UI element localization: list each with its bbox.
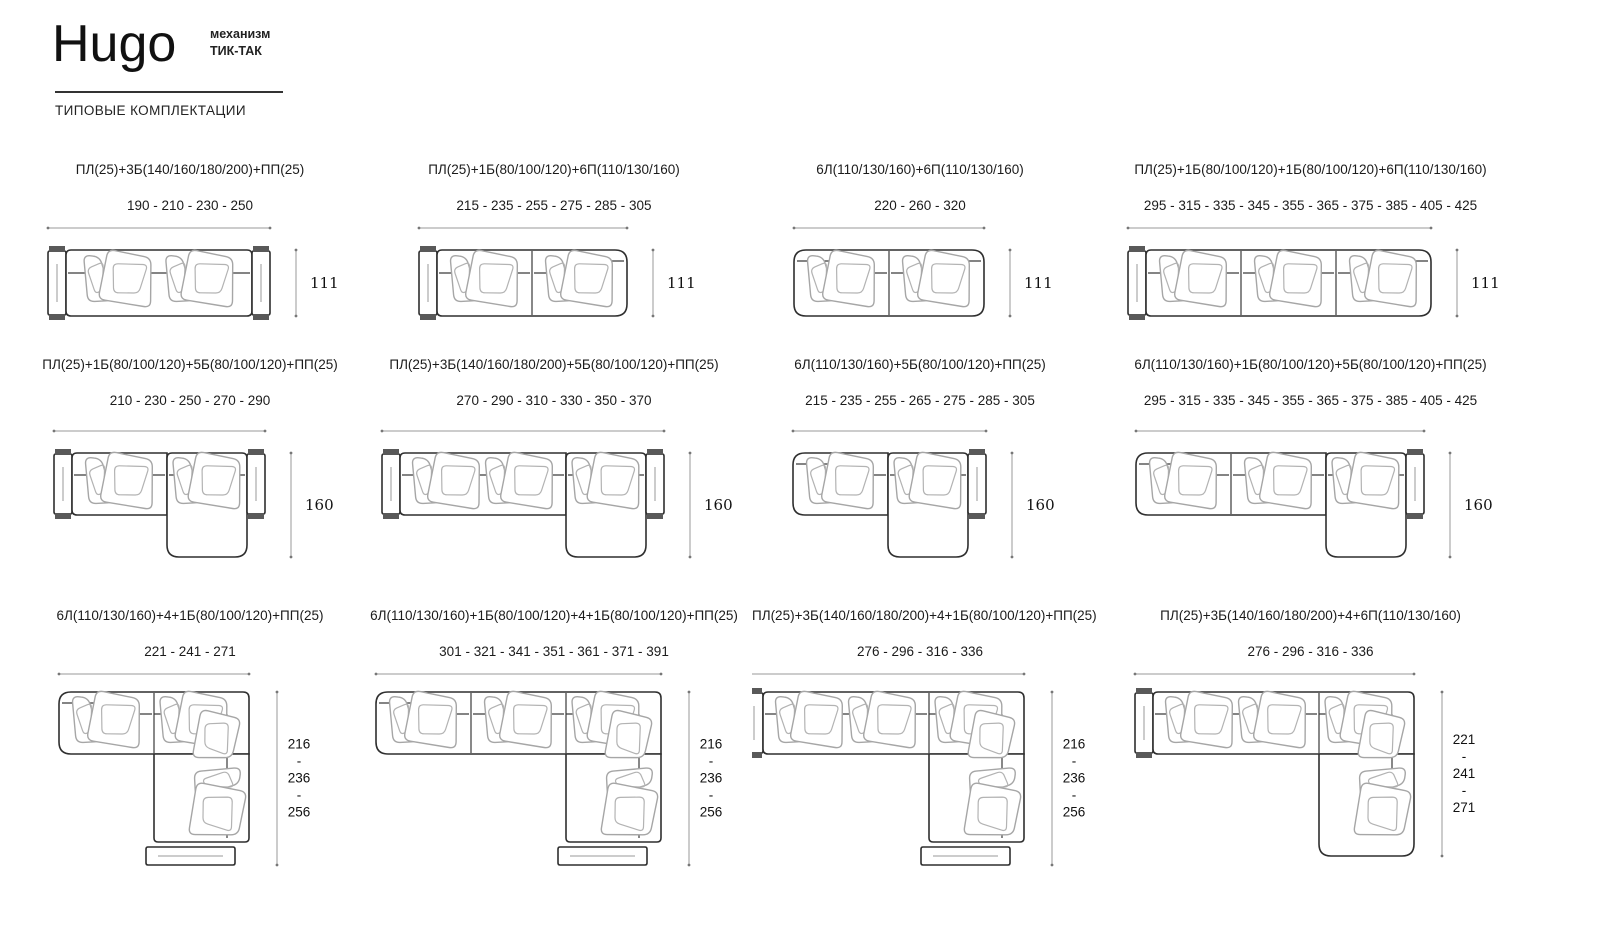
config-cell: ПЛ(25)+3Б(140/160/180/200)+5Б(80/100/120… xyxy=(358,355,750,595)
width-values: 295 - 315 - 335 - 345 - 355 - 365 - 375 … xyxy=(1088,198,1533,213)
width-values: 221 - 241 - 271 xyxy=(20,644,360,659)
config-label: 6Л(110/130/160)+5Б(80/100/120)+ПП(25) xyxy=(752,357,1088,372)
config-cell: 6Л(110/130/160)+6П(110/130/160) 220 - 26… xyxy=(752,160,1088,350)
svg-text:216-236-256: 216-236-256 xyxy=(1063,737,1086,820)
config-label: 6Л(110/130/160)+1Б(80/100/120)+5Б(80/100… xyxy=(1088,357,1533,372)
width-values: 190 - 210 - 230 - 250 xyxy=(20,198,360,213)
sofa-diagram: 160 xyxy=(358,419,750,599)
sofa-diagram: 160 xyxy=(20,419,360,599)
svg-text:111: 111 xyxy=(310,274,339,292)
config-label: 6Л(110/130/160)+6П(110/130/160) xyxy=(752,162,1088,177)
width-values: 276 - 296 - 316 - 336 xyxy=(752,644,1088,659)
width-values: 295 - 315 - 335 - 345 - 355 - 365 - 375 … xyxy=(1088,393,1533,408)
sofa-diagram: 216-236-256 xyxy=(20,662,360,937)
config-label: ПЛ(25)+3Б(140/160/180/200)+4+6П(110/130/… xyxy=(1088,608,1533,623)
width-values: 276 - 296 - 316 - 336 xyxy=(1088,644,1533,659)
config-label: ПЛ(25)+3Б(140/160/180/200)+4+1Б(80/100/1… xyxy=(752,608,1088,623)
config-cell: ПЛ(25)+1Б(80/100/120)+6П(110/130/160) 21… xyxy=(358,160,750,350)
svg-text:221-241-271: 221-241-271 xyxy=(1453,732,1476,815)
config-cell: 6Л(110/130/160)+5Б(80/100/120)+ПП(25) 21… xyxy=(752,355,1088,595)
config-label: ПЛ(25)+1Б(80/100/120)+5Б(80/100/120)+ПП(… xyxy=(20,357,360,372)
config-label: ПЛ(25)+1Б(80/100/120)+6П(110/130/160) xyxy=(358,162,750,177)
svg-text:160: 160 xyxy=(305,496,334,514)
width-values: 220 - 260 - 320 xyxy=(752,198,1088,213)
mechanism-label: механизм ТИК-ТАК xyxy=(210,26,270,60)
sofa-diagram: 160 xyxy=(1088,419,1533,599)
sofa-diagram: 111 xyxy=(358,216,750,366)
config-cell: ПЛ(25)+3Б(140/160/180/200)+4+6П(110/130/… xyxy=(1088,600,1533,940)
sofa-diagram: 221-241-271 xyxy=(1088,662,1533,937)
config-cell: 6Л(110/130/160)+1Б(80/100/120)+5Б(80/100… xyxy=(1088,355,1533,595)
svg-text:111: 111 xyxy=(1471,274,1500,292)
svg-text:111: 111 xyxy=(1024,274,1053,292)
config-label: ПЛ(25)+3Б(140/160/180/200)+5Б(80/100/120… xyxy=(358,357,750,372)
config-label: 6Л(110/130/160)+4+1Б(80/100/120)+ПП(25) xyxy=(20,608,360,623)
config-cell: ПЛ(25)+3Б(140/160/180/200)+4+1Б(80/100/1… xyxy=(752,600,1088,940)
svg-text:111: 111 xyxy=(667,274,696,292)
width-values: 270 - 290 - 310 - 330 - 350 - 370 xyxy=(358,393,750,408)
page-subtitle: ТИПОВЫЕ КОМПЛЕКТАЦИИ xyxy=(55,103,246,118)
sofa-diagram: 111 xyxy=(752,216,1088,366)
brand-logo: Hugo xyxy=(52,14,176,74)
config-cell: ПЛ(25)+3Б(140/160/180/200)+ПП(25) 190 - … xyxy=(20,160,360,350)
sofa-diagram: 111 xyxy=(20,216,360,366)
svg-text:216-236-256: 216-236-256 xyxy=(288,737,311,820)
width-values: 215 - 235 - 255 - 275 - 285 - 305 xyxy=(358,198,750,213)
config-label: ПЛ(25)+3Б(140/160/180/200)+ПП(25) xyxy=(20,162,360,177)
width-values: 301 - 321 - 341 - 351 - 361 - 371 - 391 xyxy=(358,644,750,659)
width-values: 215 - 235 - 255 - 265 - 275 - 285 - 305 xyxy=(752,393,1088,408)
svg-text:216-236-256: 216-236-256 xyxy=(700,737,723,820)
width-values: 210 - 230 - 250 - 270 - 290 xyxy=(20,393,360,408)
config-label: ПЛ(25)+1Б(80/100/120)+1Б(80/100/120)+6П(… xyxy=(1088,162,1533,177)
sofa-diagram: 216-236-256 xyxy=(752,662,1088,937)
config-cell: 6Л(110/130/160)+4+1Б(80/100/120)+ПП(25) … xyxy=(20,600,360,940)
header-rule xyxy=(55,91,283,93)
config-cell: ПЛ(25)+1Б(80/100/120)+5Б(80/100/120)+ПП(… xyxy=(20,355,360,595)
svg-text:160: 160 xyxy=(1026,496,1055,514)
sofa-diagram: 160 xyxy=(752,419,1088,599)
config-cell: ПЛ(25)+1Б(80/100/120)+1Б(80/100/120)+6П(… xyxy=(1088,160,1533,350)
sofa-diagram: 111 xyxy=(1088,216,1533,366)
config-label: 6Л(110/130/160)+1Б(80/100/120)+4+1Б(80/1… xyxy=(358,608,750,623)
config-cell: 6Л(110/130/160)+1Б(80/100/120)+4+1Б(80/1… xyxy=(358,600,750,940)
svg-text:160: 160 xyxy=(704,496,733,514)
sofa-diagram: 216-236-256 xyxy=(358,662,750,937)
svg-text:160: 160 xyxy=(1464,496,1493,514)
catalog-page: Hugo механизм ТИК-ТАК ТИПОВЫЕ КОМПЛЕКТАЦ… xyxy=(0,0,1619,944)
